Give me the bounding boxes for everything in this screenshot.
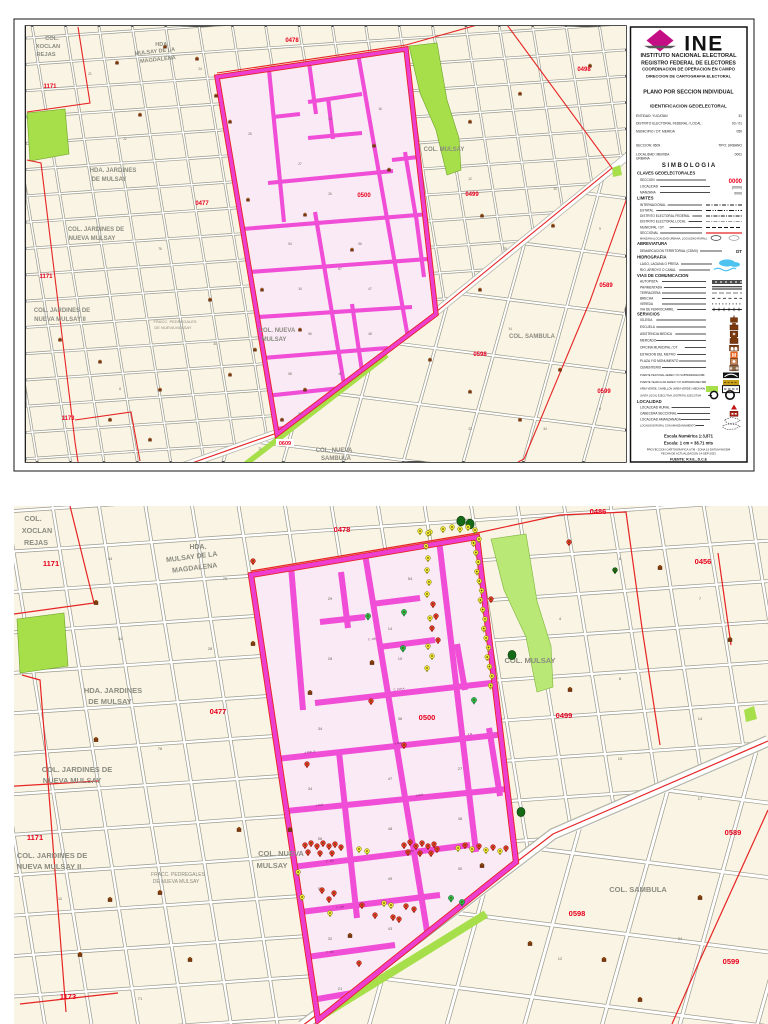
svg-text:SECCION: 0609: SECCION: 0609 <box>636 144 660 148</box>
svg-text:1173: 1173 <box>61 416 75 422</box>
svg-text:ESCUELA: ESCUELA <box>640 325 656 329</box>
svg-text:26: 26 <box>328 192 332 196</box>
svg-text:FECHA DE ACTUALIZACION 14-SEP-: FECHA DE ACTUALIZACION 14-SEP-2023 <box>661 452 716 456</box>
svg-text:HIDROGRAFIA: HIDROGRAFIA <box>637 255 667 260</box>
svg-text:0478: 0478 <box>334 525 351 534</box>
svg-text:70: 70 <box>223 576 228 581</box>
svg-text:REJAS: REJAS <box>24 538 48 547</box>
svg-text:AREA VERDE, CAMELLON (AREA VER: AREA VERDE, CAMELLON (AREA VERDE / MEDIA… <box>640 387 705 391</box>
svg-text:14: 14 <box>508 327 512 331</box>
svg-text:LOCALIDAD: LOCALIDAD <box>640 185 659 189</box>
svg-text:67: 67 <box>338 267 342 271</box>
svg-text:FRACC. PEDREGALES: FRACC. PEDREGALES <box>153 319 196 324</box>
svg-text:Escala: 1 cm = 38.71 mts: Escala: 1 cm = 38.71 mts <box>664 441 714 446</box>
svg-text:URBANA: URBANA <box>636 157 651 161</box>
svg-text:LAGO, LAGUNA O PRESA: LAGO, LAGUNA O PRESA <box>640 262 679 266</box>
svg-text:0499: 0499 <box>465 192 479 198</box>
svg-text:1171: 1171 <box>27 833 43 842</box>
svg-text:COL. JARDINES DE: COL. JARDINES DE <box>34 308 90 314</box>
svg-text:0589: 0589 <box>725 828 742 837</box>
svg-text:8: 8 <box>119 387 121 391</box>
svg-text:0001: 0001 <box>735 153 743 157</box>
svg-text:49: 49 <box>338 372 342 376</box>
svg-text:RIO, ARROYO O CANAL: RIO, ARROYO O CANAL <box>640 268 676 272</box>
svg-text:NUEVA MULSAY II: NUEVA MULSAY II <box>17 862 82 871</box>
svg-text:0599: 0599 <box>597 389 611 395</box>
svg-text:21: 21 <box>338 986 343 991</box>
svg-text:56: 56 <box>358 242 362 246</box>
svg-text:LOCALIDAD RURAL: LOCALIDAD RURAL <box>640 406 670 410</box>
svg-text:HDA. JARDINES: HDA. JARDINES <box>84 686 142 695</box>
svg-text:MANZANA (LOCALIDAD URBANA, LO: MANZANA (LOCALIDAD URBANA, LOCALIDAD RUR… <box>640 237 707 241</box>
svg-text:PLAZA Y/O MONUMENTO: PLAZA Y/O MONUMENTO <box>640 359 679 363</box>
svg-text:TIPO: URBANO: TIPO: URBANO <box>718 144 742 148</box>
svg-text:31: 31 <box>738 114 742 118</box>
svg-text:MUNICIPAL / DT: MUNICIPAL / DT <box>640 226 664 230</box>
svg-text:COL. SAMBULA: COL. SAMBULA <box>509 334 556 340</box>
svg-text:SAMBULA: SAMBULA <box>321 456 352 462</box>
svg-text:12: 12 <box>558 956 563 961</box>
svg-text:DE MULSAY: DE MULSAY <box>92 177 127 183</box>
svg-text:DE NUEVA MULSAY: DE NUEVA MULSAY <box>153 879 200 885</box>
svg-text:10: 10 <box>553 187 557 191</box>
svg-text:29: 29 <box>328 596 333 601</box>
svg-text:1171: 1171 <box>43 84 57 90</box>
svg-text:PUENTE VEHICULAR AEREO Y/O SUB: PUENTE VEHICULAR AEREO Y/O SUBTERRANEO <box>640 380 701 384</box>
svg-text:21: 21 <box>88 72 92 76</box>
svg-text:71: 71 <box>138 996 143 1001</box>
svg-text:NUEVA MULSAY II: NUEVA MULSAY II <box>34 317 86 323</box>
svg-text:PUENTE PEATONAL AEREO Y/O SUBT: PUENTE PEATONAL AEREO Y/O SUBTERRANEO <box>640 373 700 377</box>
svg-text:36: 36 <box>398 716 403 721</box>
svg-text:0598: 0598 <box>473 352 487 358</box>
svg-text:0477: 0477 <box>210 707 227 716</box>
svg-text:COL. JARDINES DE: COL. JARDINES DE <box>17 851 87 860</box>
svg-text:VEREDA: VEREDA <box>640 302 654 306</box>
svg-text:OFICINA MUNICIPAL / DT: OFICINA MUNICIPAL / DT <box>640 346 678 350</box>
svg-text:COL. NUEVA: COL. NUEVA <box>258 849 304 858</box>
svg-text:MULSAY: MULSAY <box>262 337 287 343</box>
svg-text:CABECERA SECCIONAL: CABECERA SECCIONAL <box>640 412 677 416</box>
svg-text:0000: 0000 <box>729 179 743 185</box>
svg-text:0477: 0477 <box>195 201 209 207</box>
svg-text:27: 27 <box>298 162 302 166</box>
svg-text:47: 47 <box>368 287 372 291</box>
svg-text:38: 38 <box>458 816 463 821</box>
svg-text:25: 25 <box>248 132 252 136</box>
svg-text:DE MULSAY: DE MULSAY <box>88 697 131 706</box>
svg-text:30: 30 <box>458 866 463 871</box>
svg-text:JUNTA LOCAL EJECUTIVA, DISTRIT: JUNTA LOCAL EJECUTIVA, DISTRITAL EJECUTI… <box>640 394 701 398</box>
svg-text:DISTRITO ELECTORAL LOCAL: DISTRITO ELECTORAL LOCAL <box>640 220 686 224</box>
svg-text:IDENTIFICACION GEOELECTORAL: IDENTIFICACION GEOELECTORAL <box>650 104 727 109</box>
svg-text:10: 10 <box>618 756 623 761</box>
svg-text:COORDINACION DE OPERACION EN C: COORDINACION DE OPERACION EN CAMPO <box>642 67 736 72</box>
svg-text:LOCALIDAD: LOCALIDAD <box>637 399 662 404</box>
svg-text:COL. JARDINES DE: COL. JARDINES DE <box>68 227 124 233</box>
svg-text:31: 31 <box>213 342 217 346</box>
svg-text:16: 16 <box>378 107 382 111</box>
svg-text:76: 76 <box>158 247 162 251</box>
svg-text:FUENTE: R.F.E., D.C.E: FUENTE: R.F.E., D.C.E <box>670 458 708 462</box>
svg-text:SECCION: SECCION <box>640 178 655 182</box>
svg-text:FRACC. PEDREGALES: FRACC. PEDREGALES <box>151 872 206 878</box>
svg-text:0598: 0598 <box>569 909 586 918</box>
svg-text:MUNICIPIO / DT: MERIDA: MUNICIPIO / DT: MERIDA <box>636 130 676 134</box>
svg-text:ASISTENCIA MEDICA: ASISTENCIA MEDICA <box>640 332 673 336</box>
svg-text:34: 34 <box>318 726 323 731</box>
svg-text:0500: 0500 <box>357 193 371 199</box>
svg-text:SERVICIOS: SERVICIOS <box>637 312 660 317</box>
svg-text:XOCLAN: XOCLAN <box>36 44 60 50</box>
svg-text:14: 14 <box>698 716 703 721</box>
svg-text:LOCALIDAD AMANZANADA: LOCALIDAD AMANZANADA <box>640 418 682 422</box>
svg-text:AUTOPISTA: AUTOPISTA <box>640 280 659 284</box>
svg-text:MERCADO: MERCADO <box>640 339 657 343</box>
svg-text:COL. JARDINES DE: COL. JARDINES DE <box>42 765 112 774</box>
svg-text:34: 34 <box>308 786 313 791</box>
svg-text:34: 34 <box>543 427 547 431</box>
svg-text:DEMARCACION TERRITORIAL (CDMX): DEMARCACION TERRITORIAL (CDMX) <box>640 249 698 253</box>
svg-text:0500: 0500 <box>419 713 436 722</box>
svg-text:51: 51 <box>298 412 302 416</box>
svg-text:0499: 0499 <box>556 711 573 720</box>
svg-text:MULSAY: MULSAY <box>257 861 288 870</box>
svg-text:54: 54 <box>288 242 292 246</box>
svg-text:DT: DT <box>736 249 742 254</box>
svg-text:ESTATAL: ESTATAL <box>640 209 654 213</box>
svg-text:SECCIONAL: SECCIONAL <box>640 231 659 235</box>
svg-text:LIMITES: LIMITES <box>637 196 654 201</box>
svg-text:15: 15 <box>398 656 403 661</box>
svg-text:COL.: COL. <box>24 514 41 523</box>
svg-text:COL. SAMBULA: COL. SAMBULA <box>609 885 667 894</box>
svg-text:MANZANA: MANZANA <box>640 191 656 195</box>
svg-text:0498: 0498 <box>577 67 591 73</box>
svg-text:43: 43 <box>388 926 393 931</box>
svg-text:PLANO POR SECCION INDIVIDUAL: PLANO POR SECCION INDIVIDUAL <box>643 90 734 96</box>
svg-text:54: 54 <box>408 576 413 581</box>
svg-text:48: 48 <box>368 332 372 336</box>
svg-text:050: 050 <box>736 130 742 134</box>
svg-text:INSTITUTO NACIONAL ELECTORAL: INSTITUTO NACIONAL ELECTORAL <box>640 53 737 59</box>
svg-text:28: 28 <box>328 117 332 121</box>
svg-text:NUEVA MULSAY: NUEVA MULSAY <box>43 776 101 785</box>
svg-text:VIAS DE COMUNICACION: VIAS DE COMUNICACION <box>637 273 688 278</box>
svg-text:LOCALIDAD RURAL CON AMANZANAMI: LOCALIDAD RURAL CON AMANZANAMIENTO <box>640 424 696 428</box>
svg-text:33: 33 <box>468 427 472 431</box>
svg-text:INTERNACIONAL: INTERNACIONAL <box>640 203 666 207</box>
svg-text:17: 17 <box>698 796 703 801</box>
svg-text:71: 71 <box>258 447 262 451</box>
svg-text:0486: 0486 <box>590 507 607 516</box>
svg-text:COL. NUEVA: COL. NUEVA <box>316 448 353 454</box>
svg-text:ENTIDAD: YUCATAN: ENTIDAD: YUCATAN <box>636 114 668 118</box>
svg-text:1173: 1173 <box>60 992 76 1001</box>
svg-text:DISTRITO ELECTORAL FEDERAL /: DISTRITO ELECTORAL FEDERAL / LOCAL : <box>636 122 703 126</box>
svg-text:1171: 1171 <box>39 274 53 280</box>
svg-text:0599: 0599 <box>723 957 740 966</box>
svg-text:0609: 0609 <box>279 441 291 447</box>
svg-text:03 / 01: 03 / 01 <box>732 122 742 126</box>
svg-text:IGLESIA: IGLESIA <box>640 318 653 322</box>
svg-text:HDA. JARDINES: HDA. JARDINES <box>90 168 137 174</box>
svg-text:Escala Numérica 1:3,871: Escala Numérica 1:3,871 <box>664 434 714 439</box>
svg-text:NUEVA MULSAY: NUEVA MULSAY <box>69 236 116 242</box>
svg-text:9: 9 <box>599 227 601 231</box>
svg-text:DIRECCION DE CARTOGRAFIA ELECT: DIRECCION DE CARTOGRAFIA ELECTORAL <box>646 73 732 78</box>
svg-text:REJAS: REJAS <box>36 52 55 58</box>
svg-text:48: 48 <box>388 826 393 831</box>
svg-text:XOCLAN: XOCLAN <box>22 526 52 535</box>
svg-text:76: 76 <box>158 746 163 751</box>
svg-text:DISTRITO ELECTORAL FEDERAL: DISTRITO ELECTORAL FEDERAL <box>640 214 690 218</box>
svg-text:ABREVIATURA: ABREVIATURA <box>637 241 667 246</box>
svg-text:56: 56 <box>308 332 312 336</box>
svg-text:12: 12 <box>468 177 472 181</box>
svg-text:COL. NUEVA: COL. NUEVA <box>259 328 296 334</box>
svg-text:DE NUEVA MULSAY: DE NUEVA MULSAY <box>154 325 192 330</box>
svg-text:0478: 0478 <box>285 38 299 44</box>
svg-text:8: 8 <box>599 407 601 411</box>
svg-text:34: 34 <box>118 636 123 641</box>
svg-text:56: 56 <box>318 836 323 841</box>
svg-text:ESTACION DEL METRO: ESTACION DEL METRO <box>640 353 676 357</box>
svg-text:47: 47 <box>388 776 393 781</box>
svg-text:34: 34 <box>298 287 302 291</box>
svg-text:S I M B O L O G I A: S I M B O L O G I A <box>662 163 716 169</box>
svg-text:28: 28 <box>208 646 213 651</box>
svg-text:49: 49 <box>388 876 393 881</box>
svg-text:27: 27 <box>458 766 463 771</box>
svg-text:4 B: 4 B <box>468 732 473 736</box>
svg-text:22: 22 <box>123 137 127 141</box>
svg-text:CLAVES GEOELECTORALES: CLAVES GEOELECTORALES <box>637 171 695 176</box>
svg-text:0589: 0589 <box>599 283 613 289</box>
svg-text:58: 58 <box>288 372 292 376</box>
svg-text:32: 32 <box>328 936 333 941</box>
svg-text:24: 24 <box>198 67 202 71</box>
svg-text:HDA.: HDA. <box>189 544 206 551</box>
svg-text:24: 24 <box>678 936 683 941</box>
svg-text:TERRACERIA: TERRACERIA <box>640 291 661 295</box>
svg-text:34: 34 <box>108 556 113 561</box>
svg-text:0456: 0456 <box>695 557 712 566</box>
svg-text:COL.: COL. <box>45 36 59 42</box>
svg-text:14: 14 <box>388 626 393 631</box>
svg-text:1171: 1171 <box>43 559 59 568</box>
svg-text:CEMENTERIO: CEMENTERIO <box>640 366 662 370</box>
svg-text:BRECHA: BRECHA <box>640 297 654 301</box>
svg-text:28: 28 <box>328 656 333 661</box>
svg-text:COL. MULSAY: COL. MULSAY <box>424 147 465 153</box>
svg-text:PAVIMENTADA: PAVIMENTADA <box>640 286 663 290</box>
svg-text:0000: 0000 <box>734 192 742 196</box>
svg-text:25: 25 <box>503 247 507 251</box>
svg-text:(0000): (0000) <box>732 186 742 190</box>
